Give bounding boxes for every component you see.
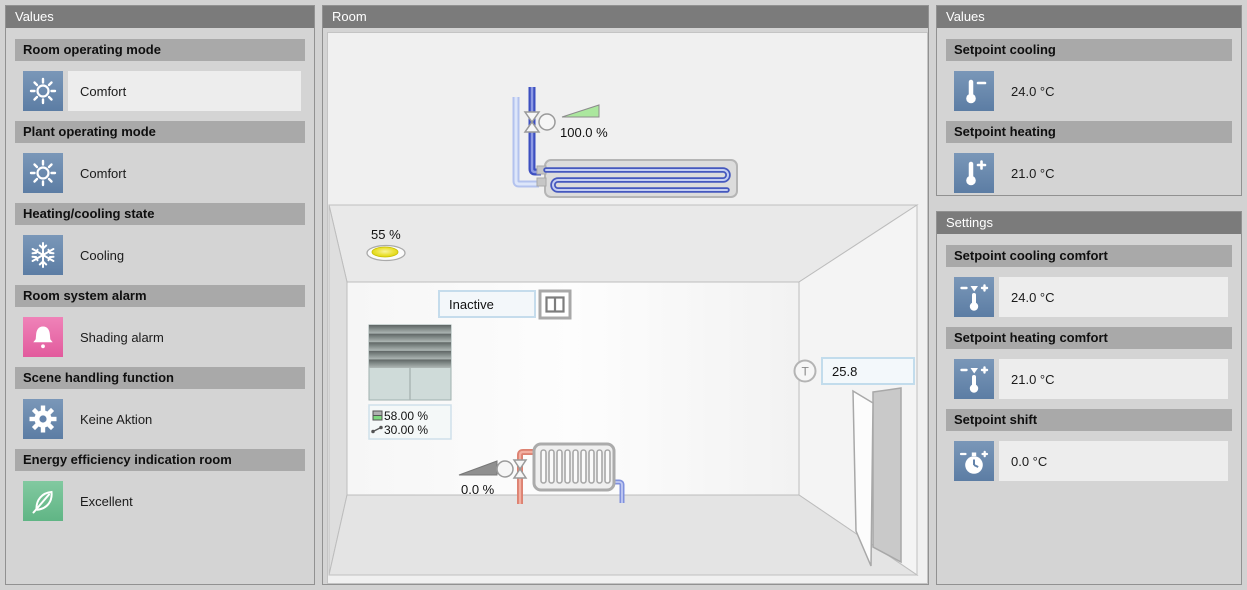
- blinds-readout: 58.00 % 30.00 %: [369, 405, 451, 439]
- setpoint-shift-value[interactable]: 0.0 °C: [999, 441, 1228, 481]
- door: [853, 388, 901, 566]
- heating-cooling-state-value: Cooling: [68, 235, 301, 275]
- section-setpoint-shift: Setpoint shift: [946, 409, 1232, 431]
- room-panel: Room: [322, 5, 929, 585]
- sun-icon: [23, 153, 63, 193]
- temperature-sensor-badge: T: [795, 361, 816, 382]
- panel-title: Room: [323, 6, 928, 28]
- section-energy-efficiency: Energy efficiency indication room: [15, 449, 305, 471]
- heating-cooling-state-row: Cooling: [23, 235, 301, 275]
- section-heating-cooling-state: Heating/cooling state: [15, 203, 305, 225]
- section-setpoint-cooling-comfort: Setpoint cooling comfort: [946, 245, 1232, 267]
- temperature-value: 25.8: [832, 364, 857, 379]
- window-icon-button[interactable]: [540, 291, 570, 318]
- blinds-angle-value: 30.00 %: [384, 423, 428, 437]
- thermometer-adjust-icon: [954, 277, 994, 317]
- window-state-value: Inactive: [449, 297, 494, 312]
- thermometer-plus-icon: [954, 153, 994, 193]
- section-room-operating-mode: Room operating mode: [15, 39, 305, 61]
- scene-handling-row: Keine Aktion: [23, 399, 301, 439]
- section-plant-operating-mode: Plant operating mode: [15, 121, 305, 143]
- section-setpoint-cooling: Setpoint cooling: [946, 39, 1232, 61]
- panel-title: Values: [6, 6, 314, 28]
- radiator-valve-position-label: 0.0 %: [461, 482, 495, 497]
- room-operating-mode-value[interactable]: Comfort: [68, 71, 301, 111]
- right-values-panel: Values Setpoint cooling 24.0 °C Setpoint…: [936, 5, 1242, 196]
- ceiling-cooling-coil: [537, 160, 737, 197]
- temperature-sensor-letter: T: [802, 365, 810, 379]
- plant-operating-mode-value: Comfort: [68, 153, 301, 193]
- room-automation-dashboard: Values Room operating mode Comfort Plant…: [0, 0, 1247, 590]
- section-room-system-alarm: Room system alarm: [15, 285, 305, 307]
- setpoint-shift-row: 0.0 °C: [954, 441, 1228, 481]
- room-system-alarm-value: Shading alarm: [68, 317, 301, 357]
- leaf-icon: [23, 481, 63, 521]
- room-system-alarm-row: Shading alarm: [23, 317, 301, 357]
- panel-title: Settings: [937, 212, 1241, 234]
- ceiling-light-icon: [367, 246, 405, 261]
- thermometer-adjust-icon: [954, 359, 994, 399]
- setpoint-heating-comfort-value[interactable]: 21.0 °C: [999, 359, 1228, 399]
- sun-icon: [23, 71, 63, 111]
- setpoint-cooling-value: 24.0 °C: [999, 71, 1228, 111]
- room-drawing-area: 100.0 % 55 % Inactive: [327, 32, 928, 584]
- temperature-field[interactable]: 25.8: [822, 358, 914, 384]
- snowflake-icon: [23, 235, 63, 275]
- setpoint-heating-comfort-row: 21.0 °C: [954, 359, 1228, 399]
- right-settings-panel: Settings Setpoint cooling comfort 24.0 °…: [936, 211, 1242, 585]
- energy-efficiency-value: Excellent: [68, 481, 301, 521]
- section-setpoint-heating-comfort: Setpoint heating comfort: [946, 327, 1232, 349]
- setpoint-cooling-comfort-value[interactable]: 24.0 °C: [999, 277, 1228, 317]
- plant-operating-mode-row: Comfort: [23, 153, 301, 193]
- door-opening: [873, 388, 901, 562]
- gear-icon: [23, 399, 63, 439]
- setpoint-heating-value: 21.0 °C: [999, 153, 1228, 193]
- thermometer-minus-icon: [954, 71, 994, 111]
- section-scene-handling: Scene handling function: [15, 367, 305, 389]
- bell-icon: [23, 317, 63, 357]
- cooling-valve-position-label: 100.0 %: [560, 125, 608, 140]
- setpoint-cooling-comfort-row: 24.0 °C: [954, 277, 1228, 317]
- left-values-panel: Values Room operating mode Comfort Plant…: [5, 5, 315, 585]
- section-setpoint-heating: Setpoint heating: [946, 121, 1232, 143]
- blinds-height-value: 58.00 %: [384, 409, 428, 423]
- room-operating-mode-row: Comfort: [23, 71, 301, 111]
- panel-title: Values: [937, 6, 1241, 28]
- radiator: [534, 444, 614, 490]
- window-state-field[interactable]: Inactive: [439, 291, 535, 317]
- setpoint-heating-row: 21.0 °C: [954, 153, 1228, 193]
- cooling-valve-position-indicator: [562, 105, 599, 117]
- light-dimmer-label: 55 %: [371, 227, 401, 242]
- window-blinds: [369, 325, 451, 400]
- scene-handling-value: Keine Aktion: [68, 399, 301, 439]
- energy-efficiency-row: Excellent: [23, 481, 301, 521]
- setpoint-cooling-row: 24.0 °C: [954, 71, 1228, 111]
- dial-adjust-icon: [954, 441, 994, 481]
